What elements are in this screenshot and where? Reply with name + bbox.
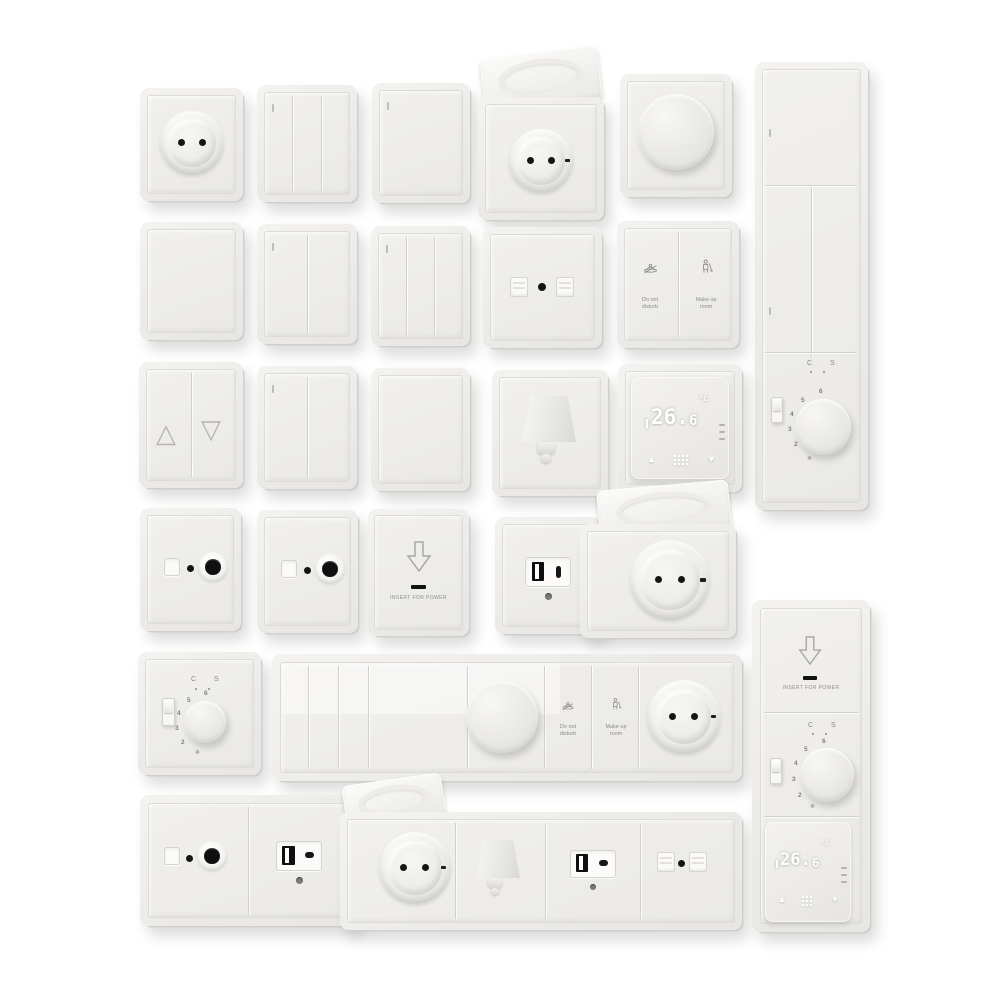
mode-dot xyxy=(825,733,827,735)
card-slot xyxy=(411,585,426,589)
snowflake-icon: ❄ xyxy=(195,749,200,756)
schuko-lidded-socket-plate xyxy=(580,524,736,638)
cable-gland-tip xyxy=(541,454,551,463)
socket-inner xyxy=(517,137,564,184)
temperature-unit: °C xyxy=(699,395,707,403)
pin-hole-left xyxy=(178,139,185,146)
dial-number: 5 xyxy=(187,697,191,704)
rocker-divider xyxy=(434,237,435,335)
product-render-canvas: C S 6 5 4 3 2 ❄ xyxy=(0,0,1000,1000)
rocker-divider xyxy=(292,96,293,191)
temperature-reading: 26. xyxy=(780,850,811,870)
usb-a-port xyxy=(532,562,544,581)
pin-hole-right xyxy=(678,576,685,583)
rocker-divider xyxy=(811,187,812,357)
usb-recess xyxy=(570,850,616,878)
data-socket-plate xyxy=(483,227,602,348)
status-indicator xyxy=(769,307,771,315)
coax-core xyxy=(322,561,338,577)
pin-hole-right xyxy=(422,864,429,871)
section-divider xyxy=(764,712,858,713)
switch-3gang-plate xyxy=(371,226,470,346)
media-port xyxy=(164,847,180,865)
mode-dot xyxy=(208,688,210,690)
dial-number: 2 xyxy=(181,739,185,746)
dial-number: 4 xyxy=(790,411,794,418)
cable-gland-tip xyxy=(491,888,499,895)
dial-number: 5 xyxy=(801,397,805,404)
status-indicator xyxy=(769,129,771,137)
small-hole xyxy=(186,855,193,862)
lid-ring xyxy=(496,54,586,102)
mode-markings: C S xyxy=(191,676,227,683)
rocker-face xyxy=(379,90,463,196)
rocker-divider xyxy=(308,666,309,769)
coax-connector xyxy=(197,841,227,871)
switch-1gang-plate xyxy=(372,83,470,203)
switch-2gang-plate xyxy=(257,224,357,344)
section-divider xyxy=(764,816,858,817)
pin-hole-left xyxy=(669,713,676,720)
rocker-divider xyxy=(307,377,308,478)
dial-number: 6 xyxy=(822,738,826,745)
blinds-switch-plate: △ ▽ xyxy=(139,362,243,488)
insert-for-power-label: INSERT FOR POWER xyxy=(752,685,870,691)
snowflake-icon: ❄ xyxy=(810,803,815,810)
section-divider xyxy=(638,666,639,769)
section-divider xyxy=(766,352,857,353)
status-indicator xyxy=(272,104,274,112)
schuko-lidded-socket-plate xyxy=(478,97,604,220)
cable-hood xyxy=(476,840,520,878)
dial-number: 6 xyxy=(819,388,823,395)
blank-cover-plate xyxy=(140,222,243,340)
section-divider xyxy=(766,185,857,186)
hotel-service-switch-plate: Do notdisturb Make uproom xyxy=(617,221,739,348)
center-hole xyxy=(678,860,685,867)
status-indicator xyxy=(272,385,274,393)
thermostat-module: 26. 6 °C ▲ ▼ xyxy=(631,377,729,479)
button-divider xyxy=(591,666,592,769)
socket-recess xyxy=(647,680,721,754)
rocker-face xyxy=(378,233,463,339)
dimmer-knob xyxy=(466,681,538,753)
socket-recess xyxy=(160,111,224,175)
thermostat-dial-knob xyxy=(795,399,851,455)
insert-for-power-label: INSERT FOR POWER xyxy=(368,595,469,601)
status-indicator xyxy=(386,245,388,253)
blinds-down-icon: ▽ xyxy=(201,416,221,442)
center-hole xyxy=(538,283,546,291)
dial-number: 5 xyxy=(804,746,808,753)
dimmer-knob xyxy=(638,94,714,170)
euro-socket-plate xyxy=(140,88,243,201)
dial-number: 2 xyxy=(794,441,798,448)
blank-face xyxy=(147,229,236,333)
dial-number: 3 xyxy=(788,426,792,433)
socket-recess xyxy=(379,832,451,904)
thermostat-dial-knob xyxy=(184,701,226,743)
thermostat-up-icon: ▲ xyxy=(778,896,786,904)
section-divider xyxy=(545,823,546,919)
rocker-face xyxy=(264,231,350,337)
thermostat-down-icon: ▼ xyxy=(831,896,839,904)
keystone-port-left xyxy=(510,277,528,297)
status-indicator xyxy=(387,102,389,110)
pin-hole-left xyxy=(400,864,407,871)
temperature-reading: 26. xyxy=(651,405,689,429)
screw xyxy=(590,884,596,890)
small-hole xyxy=(304,567,311,574)
switch-1gang-plate xyxy=(371,368,470,491)
switch-2gang-plate xyxy=(257,366,357,489)
pin-hole-right xyxy=(691,713,698,720)
blinds-up-icon: △ xyxy=(156,420,176,446)
coax-core xyxy=(205,559,221,575)
pin-hole-left xyxy=(527,157,534,164)
make-up-room-icon xyxy=(697,257,716,276)
thermostat-dial-knob xyxy=(800,748,854,802)
dimmer-plate xyxy=(620,74,732,197)
make-up-room-icon xyxy=(608,696,624,712)
dnd-label: Do notdisturb xyxy=(623,297,677,311)
long-combo-frame: Do notdisturb Make uproom xyxy=(272,654,742,781)
section-divider xyxy=(544,666,545,769)
rocker-divider xyxy=(307,235,308,333)
thermostat-up-icon: ▲ xyxy=(647,455,656,464)
thermostat-down-icon: ▼ xyxy=(707,455,716,464)
side-vents xyxy=(719,419,725,445)
socket-recess xyxy=(630,540,710,620)
socket-inner xyxy=(640,550,699,609)
rocker-divider xyxy=(368,666,369,769)
cable-outlet-plate xyxy=(492,370,608,496)
tv-coax-socket-plate xyxy=(140,508,241,631)
usb-c-port xyxy=(305,852,314,858)
dial-number: 3 xyxy=(175,725,179,732)
insert-arrow-icon xyxy=(404,539,434,575)
coax-connector xyxy=(198,552,228,582)
usb-a-port xyxy=(576,854,588,872)
earth-contact-mark xyxy=(700,578,706,582)
display-tick xyxy=(646,419,648,428)
keystone-port-left xyxy=(657,852,675,872)
rocker-divider xyxy=(406,237,407,335)
socket-inner xyxy=(168,119,215,166)
socket-recess xyxy=(509,129,573,193)
thermostat-toggle xyxy=(771,397,783,423)
card-slot xyxy=(803,676,817,680)
temperature-decimal: 6 xyxy=(812,856,819,870)
earth-contact-mark xyxy=(441,866,446,869)
double-socket-plate xyxy=(140,795,356,926)
tall-combo-panel-top: C S 6 5 4 3 2 ❄ xyxy=(755,62,868,510)
mode-dot xyxy=(195,688,197,690)
long-combo-frame xyxy=(340,812,742,930)
do-not-disturb-icon xyxy=(641,259,660,278)
dial-number: 6 xyxy=(204,690,208,697)
media-port xyxy=(281,560,297,578)
tv-coax-socket-plate xyxy=(257,510,358,633)
section-divider xyxy=(455,823,456,919)
mode-dot xyxy=(810,371,812,373)
rocker-divider xyxy=(191,373,192,477)
menu-grid-icon xyxy=(673,454,688,465)
dial-number: 4 xyxy=(794,760,798,767)
rotary-thermostat-plate: C S 6 5 4 3 2 ❄ xyxy=(138,652,261,775)
socket-inner xyxy=(388,841,441,894)
tall-combo-panel-bottom: INSERT FOR POWER C S 6 5 4 3 2 ❄ 26. 6 °… xyxy=(752,600,870,932)
usb-c-port xyxy=(556,566,561,578)
keystone-port-right xyxy=(556,277,574,297)
earth-contact-mark xyxy=(711,715,716,718)
pin-hole-left xyxy=(655,576,662,583)
menu-grid-icon xyxy=(801,895,814,906)
rocker-divider xyxy=(321,96,322,191)
digital-thermostat-plate: 26. 6 °C ▲ ▼ xyxy=(618,364,742,492)
rocker-face xyxy=(378,375,463,484)
pin-hole-right xyxy=(548,157,555,164)
dnd-label: Do notdisturb xyxy=(544,724,592,738)
coax-core xyxy=(204,848,220,864)
temperature-decimal: 6 xyxy=(689,413,697,429)
section-divider xyxy=(248,807,249,914)
dial-number: 2 xyxy=(798,792,802,799)
thermostat-toggle xyxy=(162,698,175,726)
rocker-face xyxy=(264,92,350,195)
media-port xyxy=(164,558,180,576)
usb-c-port xyxy=(599,860,608,866)
screw xyxy=(545,593,552,600)
button-divider xyxy=(678,232,679,337)
dial-number: 4 xyxy=(177,710,181,717)
usb-recess xyxy=(276,841,322,871)
thermostat-toggle xyxy=(770,758,782,784)
status-indicator xyxy=(272,243,274,251)
mode-dot xyxy=(823,371,825,373)
screw xyxy=(296,877,303,884)
usb-a-port xyxy=(282,846,295,865)
temperature-unit: °C xyxy=(821,840,828,847)
switch-3gang-plate xyxy=(257,85,357,202)
cable-hood xyxy=(522,396,576,442)
button-face xyxy=(624,228,732,341)
side-vents xyxy=(841,862,847,888)
usb-recess xyxy=(525,557,571,587)
keystone-port-right xyxy=(689,852,707,872)
keycard-holder-plate: INSERT FOR POWER xyxy=(368,509,469,636)
thermostat-module: 26. 6 °C ▲ ▼ xyxy=(765,822,851,922)
mur-label: Make uproom xyxy=(592,724,640,738)
rocker-face xyxy=(264,373,350,482)
insert-arrow-icon xyxy=(796,634,824,668)
display-tick xyxy=(776,860,778,868)
cable-gland xyxy=(488,878,502,888)
small-hole xyxy=(187,565,194,572)
mode-markings: C S xyxy=(808,722,844,729)
do-not-disturb-icon xyxy=(560,698,576,714)
cable-gland xyxy=(537,442,555,454)
rocker-divider xyxy=(338,666,339,769)
mode-dot xyxy=(812,733,814,735)
pin-hole-right xyxy=(199,139,206,146)
snowflake-icon: ❄ xyxy=(807,455,812,462)
section-divider xyxy=(640,823,641,919)
earth-contact-mark xyxy=(565,159,570,162)
mur-label: Make uproom xyxy=(679,297,733,311)
dial-number: 3 xyxy=(792,776,796,783)
mode-markings: C S xyxy=(807,360,843,367)
socket-inner xyxy=(657,690,712,745)
coax-connector xyxy=(315,554,345,584)
